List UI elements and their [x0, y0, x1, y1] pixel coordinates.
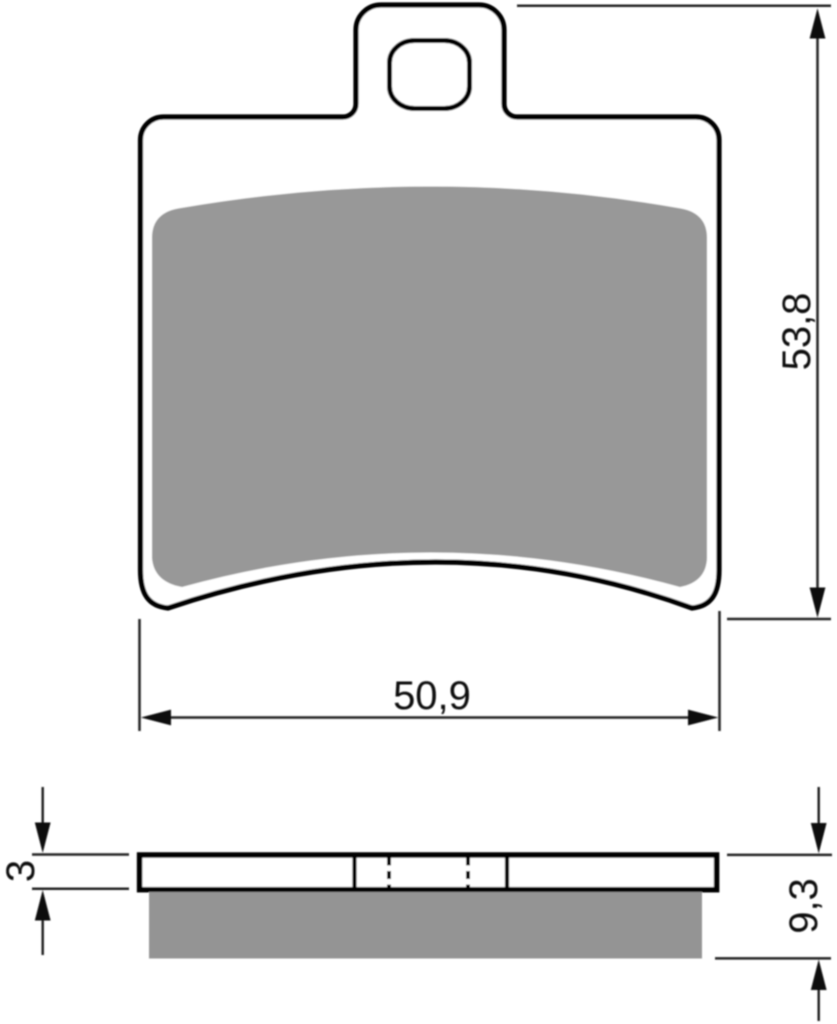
svg-text:50,9: 50,9 — [393, 674, 471, 718]
svg-text:9,3: 9,3 — [782, 878, 826, 934]
svg-text:3: 3 — [0, 860, 43, 882]
svg-text:53,8: 53,8 — [775, 293, 819, 371]
